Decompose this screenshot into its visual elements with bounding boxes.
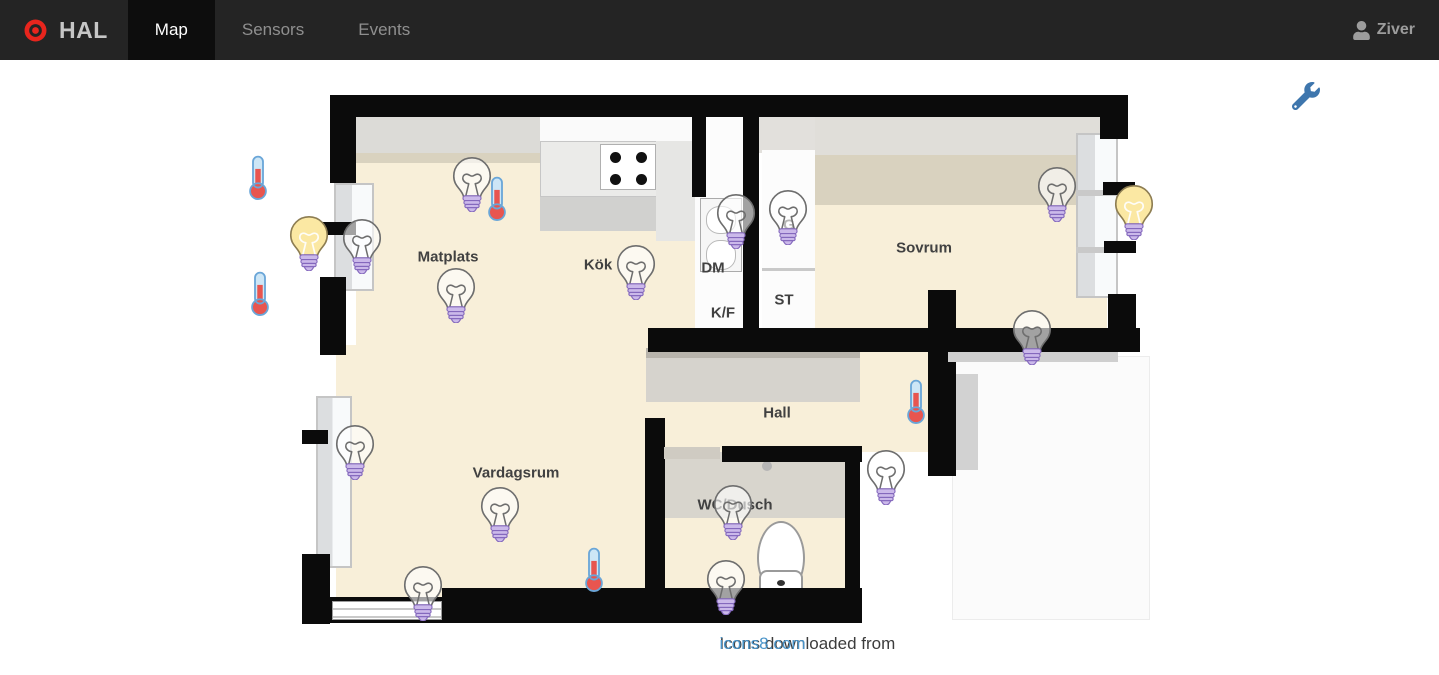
light-bulb-off-icon[interactable] — [863, 448, 909, 505]
target-record-icon — [22, 17, 49, 44]
nav-tabs: Map Sensors Events — [128, 0, 437, 60]
username-label: Ziver — [1377, 21, 1415, 39]
thermometer-icon[interactable] — [250, 270, 270, 318]
light-bulb-off-icon[interactable] — [765, 188, 811, 245]
room-label-sovrum: Sovrum — [896, 240, 952, 257]
light-bulb-off-icon[interactable] — [703, 558, 749, 615]
top-navbar: HAL Map Sensors Events Ziver — [0, 0, 1439, 60]
light-bulb-off-icon[interactable] — [713, 192, 759, 249]
light-bulb-on-icon[interactable] — [286, 214, 332, 271]
light-bulb-off-icon[interactable] — [613, 243, 659, 300]
light-bulb-off-icon[interactable] — [400, 564, 446, 621]
map-view: MatplatsKökDMK/FGSTSovrumHallVardagsrumW… — [0, 60, 1439, 675]
icons8-link[interactable]: icons8.com — [720, 634, 806, 654]
brand: HAL — [0, 0, 128, 60]
thermometer-icon[interactable] — [906, 378, 926, 426]
light-bulb-off-icon[interactable] — [449, 155, 495, 212]
light-bulb-off-icon[interactable] — [477, 485, 523, 542]
app-title: HAL — [59, 17, 108, 44]
light-bulb-off-icon[interactable] — [433, 266, 479, 323]
user-icon — [1353, 21, 1370, 40]
room-label-matplats: Matplats — [418, 249, 479, 266]
floorplan-overlay: MatplatsKökDMK/FGSTSovrumHallVardagsrumW… — [0, 60, 1439, 675]
room-label-vardagsrum: Vardagsrum — [473, 465, 560, 482]
light-bulb-off-icon[interactable] — [332, 423, 378, 480]
thermometer-icon[interactable] — [584, 546, 604, 594]
tab-sensors[interactable]: Sensors — [215, 0, 331, 60]
tab-events[interactable]: Events — [331, 0, 437, 60]
light-bulb-off-icon[interactable] — [339, 217, 385, 274]
light-bulb-off-icon[interactable] — [710, 483, 756, 540]
light-bulb-on-icon[interactable] — [1111, 183, 1157, 240]
tab-map[interactable]: Map — [128, 0, 215, 60]
room-label-k-f: K/F — [711, 305, 735, 322]
room-label-dm: DM — [701, 260, 724, 277]
thermometer-icon[interactable] — [248, 154, 268, 202]
settings-button[interactable] — [1292, 82, 1322, 112]
light-bulb-off-icon[interactable] — [1034, 165, 1080, 222]
room-label-st: ST — [774, 292, 793, 309]
light-bulb-off-icon[interactable] — [1009, 308, 1055, 365]
room-label-k-k: Kök — [584, 257, 612, 274]
room-label-hall: Hall — [763, 405, 791, 422]
user-menu[interactable]: Ziver — [1353, 0, 1439, 60]
